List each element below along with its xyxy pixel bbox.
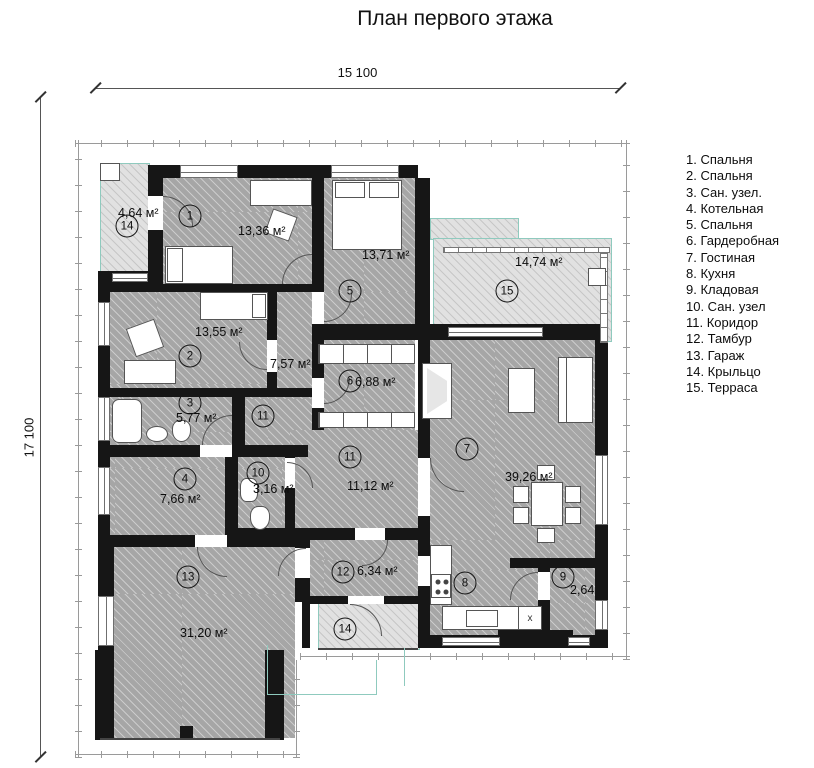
- window: [595, 600, 608, 630]
- fixture-bathtub: [112, 399, 142, 443]
- room-12-badge: 12: [332, 561, 355, 584]
- wall-segment: [510, 558, 595, 568]
- room-3-area: 5,77 м²: [176, 411, 217, 425]
- corridor-area: 11,12 м²: [347, 479, 394, 493]
- door-opening: [355, 528, 385, 540]
- wall-segment: [415, 178, 430, 324]
- walkway-line: [404, 648, 405, 686]
- wall-segment: [498, 630, 573, 648]
- window: [98, 302, 110, 346]
- furniture-chair: [537, 528, 555, 543]
- kitchen-stove: [431, 574, 451, 598]
- eave-line: [300, 653, 630, 660]
- window: [331, 165, 399, 178]
- floor-plan-page: { "title": "План первого этажа", "dimens…: [0, 0, 814, 768]
- wall-segment: [232, 397, 245, 445]
- room-5-badge: 5: [339, 280, 362, 303]
- furniture-chair: [565, 507, 581, 524]
- wall-segment: [312, 324, 418, 340]
- door-opening: [418, 458, 430, 516]
- door-opening: [312, 292, 324, 324]
- wall-segment: [225, 457, 238, 535]
- porch-column: [100, 163, 120, 181]
- furniture-desk: [124, 360, 176, 384]
- terrace-railing: [443, 247, 610, 253]
- room-5-area: 13,71 м²: [362, 248, 410, 262]
- furniture-pillow: [369, 182, 399, 198]
- terrace-step-area: [430, 218, 519, 240]
- door-opening: [348, 596, 384, 604]
- room-13-badge: 13: [177, 566, 200, 589]
- eave-line: [75, 751, 300, 758]
- room-1-badge: 1: [179, 205, 202, 228]
- room-4-badge: 4: [174, 468, 197, 491]
- room-15-area: 14,74 м²: [515, 255, 563, 269]
- room-2-area: 13,55 м²: [195, 325, 243, 339]
- furniture-fireplace: [422, 363, 452, 419]
- porch-edge-line: [318, 648, 418, 650]
- room-14-badge: 14: [334, 618, 357, 641]
- furniture-chair: [513, 507, 529, 524]
- floor-plan: x 14 1 5 15 2 11 6 3 4 10 11 7 13 12 8 9…: [0, 0, 814, 768]
- room-14-area: 4,64 м²: [118, 206, 159, 220]
- room-2-badge: 2: [179, 345, 202, 368]
- room-10-area: 3,16 м²: [253, 482, 294, 496]
- door-opening: [418, 556, 430, 586]
- walkway-line: [267, 694, 377, 695]
- room-11-badge: 11: [252, 405, 275, 428]
- furniture-pillow: [335, 182, 365, 198]
- eave-line: [75, 140, 82, 758]
- wall-segment: [110, 284, 312, 292]
- furniture-wardrobe: [318, 412, 415, 428]
- kitchen-appliance-marker: x: [518, 606, 542, 630]
- window: [180, 165, 238, 178]
- eave-line: [623, 140, 630, 660]
- eave-line: [75, 140, 630, 147]
- kitchen-sink: [466, 610, 498, 627]
- room-11-badge: 11: [339, 446, 362, 469]
- room-9-area: 2,64: [570, 583, 594, 597]
- window: [98, 596, 114, 646]
- window: [568, 637, 590, 646]
- furniture-chair: [565, 486, 581, 503]
- furniture-wardrobe: [318, 344, 415, 364]
- wall-segment: [302, 602, 310, 648]
- window: [98, 467, 110, 515]
- door-opening: [312, 378, 324, 408]
- furniture-pillow: [167, 248, 183, 282]
- corridor-area: 7,57 м²: [270, 357, 311, 371]
- walkway-line: [376, 660, 377, 695]
- room-12-area: 6,34 м²: [357, 564, 398, 578]
- window: [595, 455, 608, 525]
- garage-door-line: [100, 738, 280, 740]
- wall-segment: [595, 525, 608, 600]
- terrace-column: [588, 268, 606, 286]
- window: [112, 273, 148, 282]
- wall-pillar: [95, 650, 114, 740]
- furniture-desk: [250, 180, 312, 206]
- walkway-line: [267, 645, 268, 695]
- furniture-chair: [513, 486, 529, 503]
- room-6-area: 6,88 м²: [355, 375, 396, 389]
- fixture-sink: [146, 426, 168, 442]
- furniture-pillow: [252, 294, 266, 318]
- wall-segment: [98, 388, 312, 397]
- room-8-badge: 8: [454, 572, 477, 595]
- door-opening: [538, 572, 550, 600]
- door-opening: [195, 535, 227, 547]
- wall-segment: [595, 324, 608, 455]
- window: [98, 397, 110, 441]
- window: [442, 637, 500, 646]
- room-1-area: 13,36 м²: [238, 224, 286, 238]
- room-7-badge: 7: [456, 438, 479, 461]
- room-7-area: 39,26 м²: [505, 470, 553, 484]
- furniture-sofa: [558, 357, 593, 423]
- terrace-railing: [600, 253, 608, 343]
- furniture-coffee-table: [508, 368, 535, 413]
- room-4-area: 7,66 м²: [160, 492, 201, 506]
- room-13-area: 31,20 м²: [180, 626, 228, 640]
- door-opening: [200, 445, 232, 457]
- fixture-toilet: [250, 506, 270, 530]
- fireplace-inner: [427, 368, 447, 414]
- room-15-badge: 15: [496, 280, 519, 303]
- window: [448, 327, 543, 337]
- furniture-dining-table: [531, 482, 563, 526]
